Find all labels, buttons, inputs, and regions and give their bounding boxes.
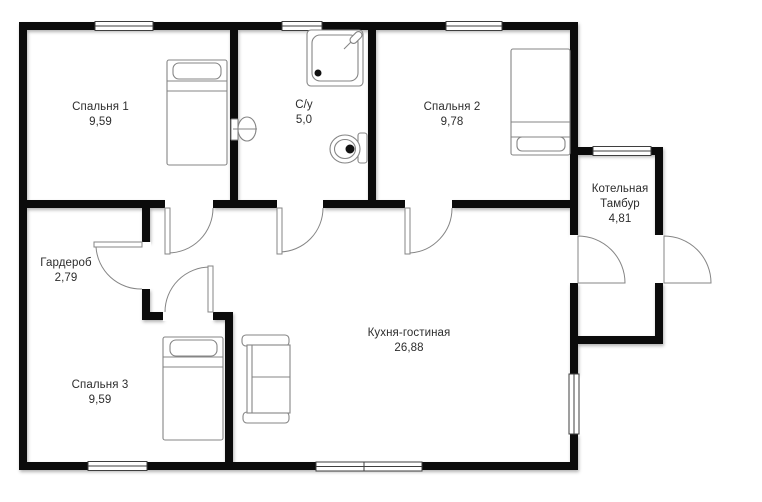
- door-swing-icon-boiler: [578, 236, 625, 283]
- room-name-2: Тамбур: [578, 197, 662, 212]
- room-area: 2,79: [16, 271, 116, 286]
- room-name: Спальня 1: [39, 100, 162, 115]
- room-area: 5,0: [274, 113, 334, 128]
- bed-icon-bedroom2: [511, 49, 570, 155]
- floor-plan: Спальня 1 9,59 С/у 5,0 Спальня 2 9,78 Ко…: [0, 0, 762, 502]
- bed-icon-bedroom1: [167, 60, 227, 165]
- door-swing-icon-bathroom: [277, 208, 323, 254]
- door-swing-icon-bedroom3: [165, 266, 213, 312]
- room-name: Спальня 2: [391, 100, 513, 115]
- window-icon-bedroom3: [88, 462, 147, 471]
- room-name: Гардероб: [16, 256, 116, 271]
- room-name: Спальня 3: [39, 378, 161, 393]
- room-area: 9,59: [39, 115, 162, 130]
- sofa-icon: [242, 335, 290, 423]
- room-name: Кухня-гостиная: [339, 326, 479, 341]
- room-label-bedroom3: Спальня 3 9,59: [39, 378, 161, 408]
- window-icon-living-side: [569, 374, 579, 434]
- bed-icon-bedroom3: [163, 337, 223, 440]
- floor-plan-drawing: [0, 0, 762, 502]
- window-icon-boiler: [593, 147, 651, 156]
- window-icon-bathroom: [282, 22, 322, 31]
- room-name: С/у: [274, 98, 334, 113]
- door-swing-icon-entrance: [664, 236, 711, 283]
- wall-lamp-icon: [231, 117, 257, 141]
- room-label-kitchen-living: Кухня-гостиная 26,88: [339, 326, 479, 356]
- room-label-wardrobe: Гардероб 2,79: [16, 256, 116, 286]
- door-swing-icon-bedroom1: [165, 208, 213, 254]
- room-area: 4,81: [578, 212, 662, 227]
- room-name: Котельная: [578, 182, 662, 197]
- room-label-bedroom2: Спальня 2 9,78: [391, 100, 513, 130]
- room-label-bedroom1: Спальня 1 9,59: [39, 100, 162, 130]
- room-area: 9,59: [39, 393, 161, 408]
- window-icon-bedroom2: [446, 22, 502, 31]
- room-area: 9,78: [391, 115, 513, 130]
- room-area: 26,88: [339, 341, 479, 356]
- shower-icon: [307, 30, 363, 86]
- window-icon-bedroom1: [95, 22, 153, 31]
- room-label-boiler: Котельная Тамбур 4,81: [578, 182, 662, 227]
- toilet-icon: [330, 133, 367, 163]
- room-label-bathroom: С/у 5,0: [274, 98, 334, 128]
- furniture: [163, 30, 570, 440]
- window-icon-living-bottom: [316, 462, 422, 471]
- door-swing-icon-bedroom2: [405, 208, 452, 254]
